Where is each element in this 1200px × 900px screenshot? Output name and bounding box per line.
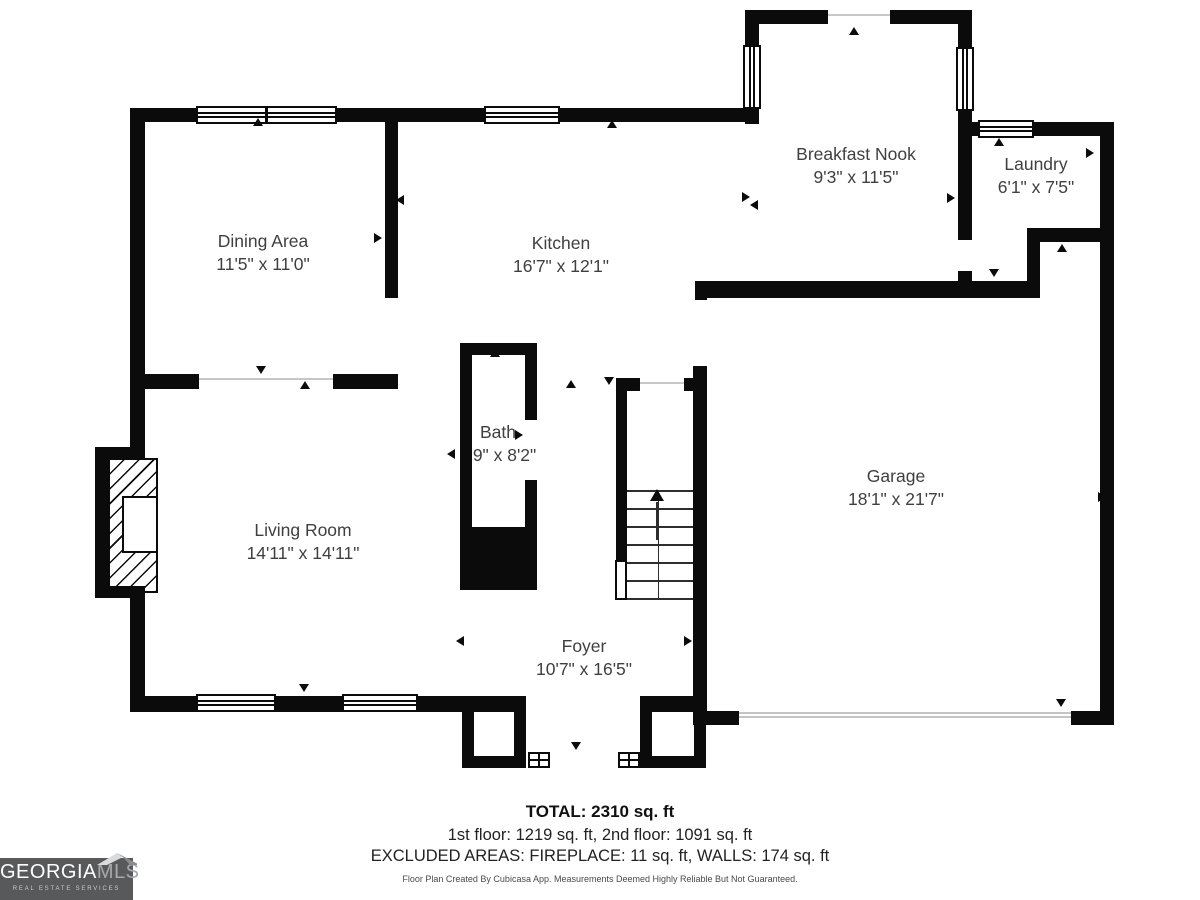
wall-segment bbox=[525, 343, 537, 420]
room-dims: 9'3" x 11'5" bbox=[796, 166, 916, 189]
door-direction-arrow bbox=[374, 233, 382, 243]
room-name: Living Room bbox=[247, 519, 360, 542]
door-direction-arrow bbox=[1098, 492, 1106, 502]
door-direction-arrow bbox=[607, 120, 617, 128]
stair-tread bbox=[627, 598, 693, 600]
door-direction-arrow bbox=[300, 381, 310, 389]
door-direction-arrow bbox=[256, 366, 266, 374]
room-label-kitchen: Kitchen 16'7" x 12'1" bbox=[513, 232, 609, 278]
window bbox=[266, 106, 337, 124]
wall-segment bbox=[130, 108, 145, 459]
window bbox=[342, 694, 418, 712]
stair-tread bbox=[627, 544, 693, 546]
garage-door-line bbox=[739, 712, 1071, 714]
door-direction-arrow bbox=[456, 636, 464, 646]
door-direction-arrow bbox=[694, 490, 702, 500]
wall-segment bbox=[695, 281, 707, 300]
logo-text-georgia: GEORGIA bbox=[0, 861, 97, 883]
wall-segment bbox=[525, 480, 537, 530]
door-direction-arrow bbox=[961, 148, 969, 158]
room-name: Dining Area bbox=[216, 230, 309, 253]
wall-segment bbox=[616, 378, 627, 560]
wall-segment bbox=[958, 10, 972, 240]
entry-sidelight-window bbox=[528, 752, 550, 768]
disclaimer-text: Floor Plan Created By Cubicasa App. Meas… bbox=[0, 874, 1200, 884]
room-dims: 10'7" x 16'5" bbox=[536, 658, 632, 681]
wall-segment bbox=[1071, 711, 1114, 725]
door-direction-arrow bbox=[1086, 148, 1094, 158]
room-label-laundry: Laundry 6'1" x 7'5" bbox=[998, 153, 1075, 199]
wall-opening bbox=[199, 374, 333, 389]
wall-segment bbox=[130, 586, 145, 712]
georgiamls-logo: GEORGIAMLS REAL ESTATE SERVICES bbox=[0, 858, 133, 900]
room-label-dining-area: Dining Area 11'5" x 11'0" bbox=[216, 230, 309, 276]
door-direction-arrow bbox=[396, 195, 404, 205]
door-leaf bbox=[615, 560, 627, 600]
excluded-areas-text: EXCLUDED AREAS: FIREPLACE: 11 sq. ft, WA… bbox=[0, 846, 1200, 867]
total-area-text: TOTAL: 2310 sq. ft bbox=[0, 802, 1200, 822]
door-direction-arrow bbox=[750, 200, 758, 210]
door-direction-arrow bbox=[947, 193, 955, 203]
door-direction-arrow bbox=[989, 269, 999, 277]
stair-tread bbox=[627, 580, 693, 582]
room-dims: 14'11" x 14'11" bbox=[247, 542, 360, 565]
window bbox=[196, 694, 276, 712]
door-direction-arrow bbox=[1056, 699, 1066, 707]
door-direction-arrow bbox=[604, 377, 614, 385]
door-direction-arrow bbox=[461, 428, 469, 438]
room-name: Laundry bbox=[998, 153, 1075, 176]
door-direction-arrow bbox=[490, 349, 500, 357]
wall-segment bbox=[694, 696, 706, 768]
room-label-living-room: Living Room 14'11" x 14'11" bbox=[247, 519, 360, 565]
door-direction-arrow bbox=[684, 636, 692, 646]
stair-tread bbox=[627, 526, 693, 528]
entry-sidelight-window bbox=[618, 752, 640, 768]
door-direction-arrow bbox=[515, 430, 523, 440]
wall-segment bbox=[95, 447, 145, 459]
window bbox=[956, 47, 974, 111]
wall-segment bbox=[684, 378, 696, 391]
room-name: Kitchen bbox=[513, 232, 609, 255]
window bbox=[978, 120, 1034, 138]
wall-opening bbox=[828, 10, 890, 24]
room-label-garage: Garage 18'1" x 21'7" bbox=[848, 465, 944, 511]
room-name: Breakfast Nook bbox=[796, 143, 916, 166]
wall-segment bbox=[1100, 122, 1114, 725]
window bbox=[484, 106, 560, 124]
room-label-breakfast-nook: Breakfast Nook 9'3" x 11'5" bbox=[796, 143, 916, 189]
wall-opening bbox=[640, 378, 684, 391]
door-direction-arrow bbox=[132, 235, 140, 245]
wall-segment bbox=[514, 696, 526, 768]
door-direction-arrow bbox=[447, 449, 455, 459]
stair-tread bbox=[627, 562, 693, 564]
room-label-foyer: Foyer 10'7" x 16'5" bbox=[536, 635, 632, 681]
wall-segment bbox=[695, 281, 1040, 298]
door-direction-arrow bbox=[849, 27, 859, 35]
door-direction-arrow bbox=[299, 684, 309, 692]
logo-wordmark: GEORGIAMLS bbox=[0, 861, 133, 885]
window bbox=[743, 45, 761, 109]
room-dims: 11'5" x 11'0" bbox=[216, 253, 309, 276]
fireplace-firebox bbox=[122, 496, 158, 553]
room-dims: 16'7" x 12'1" bbox=[513, 255, 609, 278]
wall-segment bbox=[460, 527, 537, 590]
room-dims: 18'1" x 21'7" bbox=[848, 488, 944, 511]
stairs-up-arrow bbox=[650, 489, 664, 501]
door-direction-arrow bbox=[571, 742, 581, 750]
room-name: Foyer bbox=[536, 635, 632, 658]
garage-door-line bbox=[739, 716, 1071, 718]
floor-plan-canvas: Dining Area 11'5" x 11'0" Kitchen 16'7" … bbox=[0, 0, 1200, 900]
area-summary: TOTAL: 2310 sq. ft 1st floor: 1219 sq. f… bbox=[0, 802, 1200, 884]
door-direction-arrow bbox=[1057, 244, 1067, 252]
floor-areas-text: 1st floor: 1219 sq. ft, 2nd floor: 1091 … bbox=[0, 825, 1200, 846]
room-dims: 6'1" x 7'5" bbox=[998, 176, 1075, 199]
wall-segment bbox=[1027, 228, 1114, 242]
door-direction-arrow bbox=[253, 118, 263, 126]
stair-arrow-shaft bbox=[656, 502, 659, 540]
wall-segment bbox=[95, 447, 109, 598]
wall-segment bbox=[693, 366, 707, 712]
door-direction-arrow bbox=[994, 138, 1004, 146]
stair-tread bbox=[627, 508, 693, 510]
door-direction-arrow bbox=[566, 380, 576, 388]
door-direction-arrow bbox=[742, 192, 750, 202]
roof-icon bbox=[97, 853, 137, 865]
room-name: Garage bbox=[848, 465, 944, 488]
logo-tagline: REAL ESTATE SERVICES bbox=[0, 886, 133, 892]
